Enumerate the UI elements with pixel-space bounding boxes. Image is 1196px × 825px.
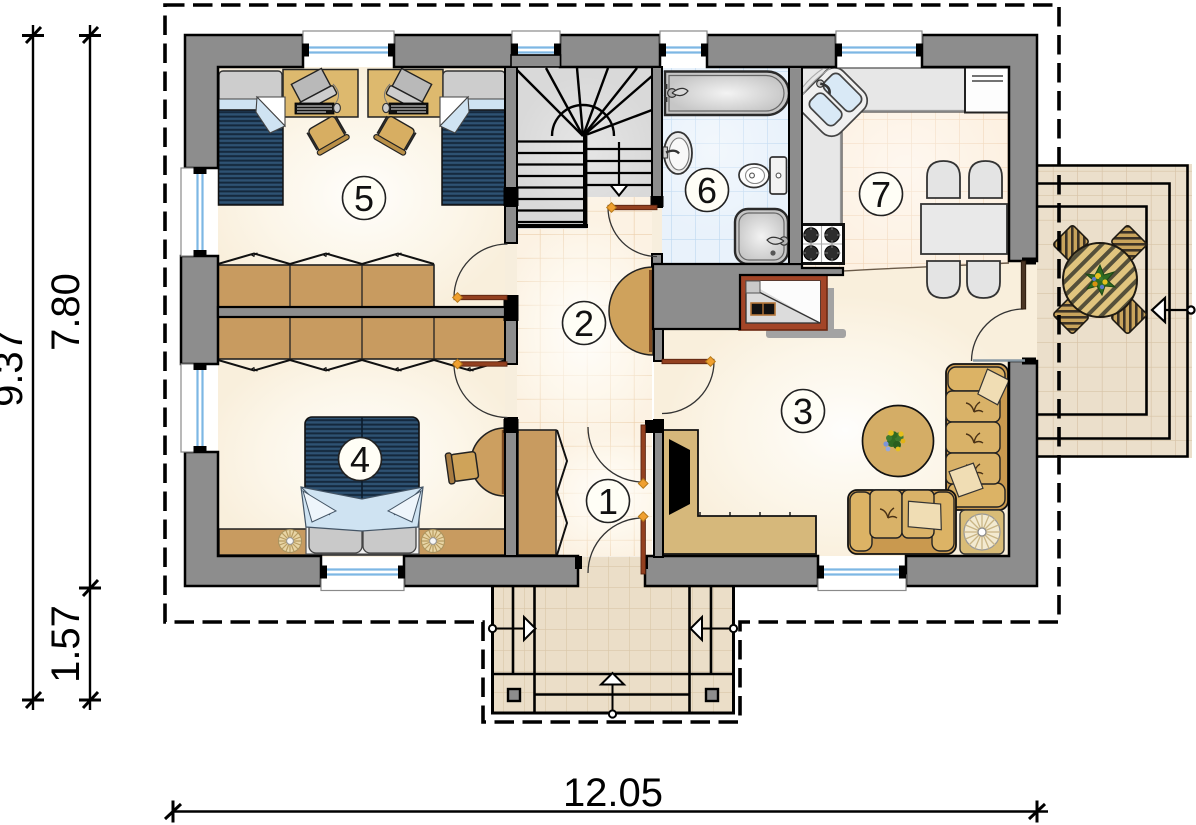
svg-text:3: 3 (793, 391, 813, 432)
svg-text:5: 5 (354, 178, 374, 219)
svg-text:4: 4 (350, 439, 370, 480)
svg-text:7.80: 7.80 (44, 273, 88, 351)
svg-text:1: 1 (598, 481, 618, 522)
svg-text:9.37: 9.37 (0, 329, 31, 407)
svg-text:1.57: 1.57 (44, 605, 88, 683)
svg-text:7: 7 (871, 174, 891, 215)
svg-text:2: 2 (574, 303, 594, 344)
svg-text:6: 6 (697, 170, 717, 211)
svg-text:12.05: 12.05 (563, 771, 663, 815)
